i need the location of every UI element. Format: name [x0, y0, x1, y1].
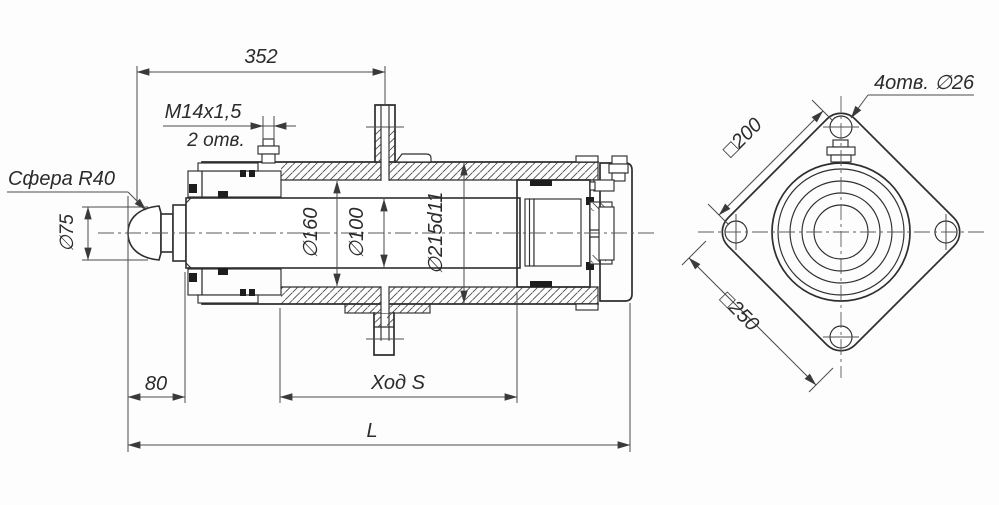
dia-outer-label: ∅215d11 — [425, 192, 447, 275]
square-bolt-circle-label: □200 — [719, 114, 767, 162]
end-view: 4отв. ∅26 □200 □250 — [682, 72, 985, 392]
cylinder-drawing: 352 M14x1,5 2 отв. Сфера R40 ∅75 ∅160 ∅1… — [0, 0, 999, 505]
label-sphere: Сфера R40 — [7, 168, 146, 210]
stroke-label: Ход S — [370, 372, 426, 394]
dim-holes4: 4отв. ∅26 — [851, 72, 975, 118]
length-label: L — [366, 420, 377, 442]
holes-label: 4отв. ∅26 — [874, 72, 975, 94]
dim-352-label: 352 — [244, 46, 277, 68]
dia-rod-label: ∅100 — [346, 208, 368, 259]
piston — [517, 180, 594, 287]
grease-fitting — [258, 139, 279, 163]
dim-thread-m14: M14x1,5 2 отв. — [163, 101, 296, 151]
square-flange-label: □250 — [715, 288, 763, 336]
dia-rod-end-label: ∅75 — [57, 214, 78, 252]
thread-label: M14x1,5 — [165, 101, 243, 123]
thread-holes-label: 2 отв. — [186, 130, 244, 151]
dim-square-250: □250 — [682, 241, 833, 392]
side-view: 352 M14x1,5 2 отв. Сфера R40 ∅75 ∅160 ∅1… — [7, 46, 656, 452]
sphere-label: Сфера R40 — [8, 168, 115, 190]
drawing-canvas: 352 M14x1,5 2 отв. Сфера R40 ∅75 ∅160 ∅1… — [0, 0, 999, 505]
dim-square-200: □200 — [708, 100, 833, 225]
dim-80-label: 80 — [145, 373, 167, 395]
dia-bore-label: ∅160 — [300, 208, 322, 259]
top-port-channel — [382, 161, 389, 181]
top-weld-pad — [396, 154, 431, 162]
